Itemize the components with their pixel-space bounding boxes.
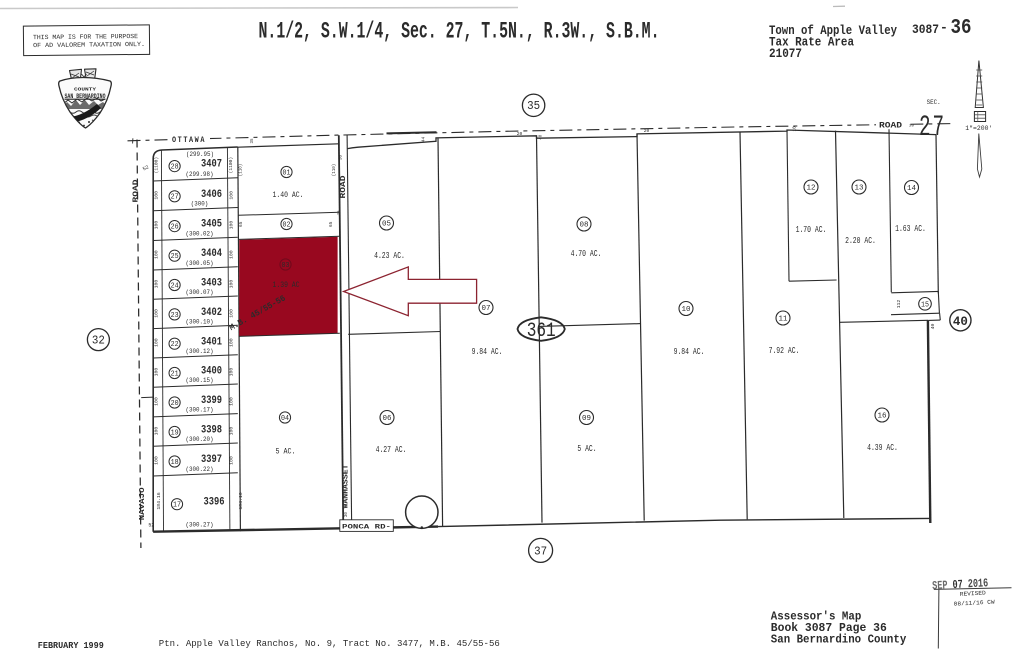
svg-text:(110): (110) bbox=[238, 164, 243, 177]
svg-text:PONCA RD-: PONCA RD- bbox=[342, 524, 391, 532]
svg-text:100: 100 bbox=[154, 338, 160, 347]
svg-text:(300.05): (300.05) bbox=[186, 260, 214, 267]
svg-text:5 AC.: 5 AC. bbox=[276, 448, 296, 457]
svg-text:7.92 AC.: 7.92 AC. bbox=[769, 346, 800, 356]
svg-text:-: - bbox=[940, 20, 948, 35]
svg-text:112: 112 bbox=[896, 300, 902, 309]
svg-text:100: 100 bbox=[228, 309, 234, 318]
svg-text:1"=200': 1"=200' bbox=[965, 125, 992, 132]
svg-text:184.10: 184.10 bbox=[238, 492, 244, 509]
svg-text:03: 03 bbox=[282, 262, 290, 270]
svg-text:(300.17): (300.17) bbox=[186, 407, 214, 414]
svg-text:4.23 AC.: 4.23 AC. bbox=[374, 251, 405, 261]
svg-text:NAVAJO: NAVAJO bbox=[139, 487, 147, 521]
svg-text:40: 40 bbox=[540, 134, 544, 140]
svg-text:06: 06 bbox=[383, 415, 392, 423]
svg-text:FEBRUARY 1999: FEBRUARY 1999 bbox=[38, 641, 104, 651]
svg-text:1.70 AC.: 1.70 AC. bbox=[796, 225, 827, 235]
svg-text:1.39 AC: 1.39 AC bbox=[273, 282, 300, 290]
svg-text:100: 100 bbox=[154, 456, 160, 465]
svg-text:(110): (110) bbox=[332, 164, 337, 177]
svg-text:14: 14 bbox=[907, 185, 916, 193]
svg-text:3400: 3400 bbox=[201, 366, 222, 378]
svg-text:21: 21 bbox=[171, 370, 179, 378]
svg-text:(300.10): (300.10) bbox=[186, 318, 214, 325]
svg-text:100: 100 bbox=[228, 191, 234, 200]
svg-text:10: 10 bbox=[682, 306, 691, 314]
svg-text:COUNTY: COUNTY bbox=[74, 87, 96, 93]
svg-text:3398: 3398 bbox=[201, 425, 222, 437]
svg-text:30: 30 bbox=[345, 512, 349, 518]
svg-text:37: 37 bbox=[534, 546, 547, 559]
svg-text:1.63 AC.: 1.63 AC. bbox=[895, 224, 926, 234]
svg-text:9.84 AC.: 9.84 AC. bbox=[674, 347, 705, 357]
svg-text:3407: 3407 bbox=[201, 159, 222, 171]
svg-text:16: 16 bbox=[878, 413, 887, 421]
svg-text:(300.15): (300.15) bbox=[186, 377, 214, 384]
svg-text:(300.12): (300.12) bbox=[186, 348, 214, 355]
svg-text:15: 15 bbox=[921, 301, 929, 309]
svg-text:02: 02 bbox=[283, 221, 291, 229]
svg-text:361: 361 bbox=[527, 320, 556, 343]
svg-text:3406: 3406 bbox=[201, 189, 222, 201]
svg-text:(300.20): (300.20) bbox=[186, 436, 214, 443]
svg-text:(1100): (1100) bbox=[154, 157, 160, 174]
svg-text:SEC.: SEC. bbox=[927, 99, 941, 106]
svg-text:36: 36 bbox=[951, 17, 972, 40]
svg-text:20: 20 bbox=[644, 128, 650, 134]
svg-text:04: 04 bbox=[281, 415, 289, 423]
svg-text:ROAD: ROAD bbox=[879, 121, 902, 130]
svg-text:100: 100 bbox=[154, 280, 160, 289]
svg-text:3401: 3401 bbox=[201, 336, 222, 348]
svg-text:35: 35 bbox=[527, 100, 540, 113]
svg-text:12: 12 bbox=[807, 185, 816, 193]
svg-text:1.40 AC.: 1.40 AC. bbox=[273, 191, 304, 200]
svg-text:100: 100 bbox=[154, 221, 160, 230]
svg-text:5 AC.: 5 AC. bbox=[577, 444, 596, 454]
svg-text:21077: 21077 bbox=[769, 47, 802, 61]
svg-text:44: 44 bbox=[422, 137, 427, 143]
svg-text:08: 08 bbox=[580, 222, 589, 230]
svg-text:ROAD: ROAD bbox=[340, 175, 348, 199]
svg-text:N.1/2, S.W.1/4, Sec. 27, T.5N.: N.1/2, S.W.1/4, Sec. 27, T.5N., R.3W., S… bbox=[259, 19, 660, 45]
svg-text:(1100): (1100) bbox=[228, 157, 234, 174]
svg-text:100: 100 bbox=[154, 309, 160, 318]
svg-text:65: 65 bbox=[239, 221, 244, 227]
svg-text:184.16: 184.16 bbox=[156, 492, 162, 509]
svg-text:3399: 3399 bbox=[201, 395, 222, 407]
svg-text:(300.07): (300.07) bbox=[186, 289, 214, 296]
svg-text:17: 17 bbox=[173, 502, 181, 510]
svg-text:27: 27 bbox=[171, 194, 179, 202]
svg-text:100: 100 bbox=[228, 338, 234, 347]
svg-text:23: 23 bbox=[171, 312, 179, 320]
svg-text:45: 45 bbox=[337, 210, 342, 216]
svg-text:100: 100 bbox=[228, 427, 234, 436]
svg-text:25: 25 bbox=[171, 253, 179, 261]
svg-text:100: 100 bbox=[228, 250, 234, 259]
svg-text:10: 10 bbox=[793, 126, 798, 132]
svg-text:100: 100 bbox=[228, 280, 234, 289]
svg-text:4.70 AC.: 4.70 AC. bbox=[571, 249, 602, 259]
svg-text:3087: 3087 bbox=[912, 23, 939, 37]
svg-text:(299.95): (299.95) bbox=[186, 151, 214, 158]
svg-text:3403: 3403 bbox=[201, 278, 222, 290]
svg-text:13: 13 bbox=[855, 185, 864, 193]
svg-text:11: 11 bbox=[779, 316, 788, 324]
svg-text:San Bernardino County: San Bernardino County bbox=[771, 633, 907, 646]
svg-text:09: 09 bbox=[582, 415, 591, 423]
svg-text:100: 100 bbox=[154, 368, 160, 377]
svg-text:100: 100 bbox=[154, 397, 160, 406]
svg-text:01: 01 bbox=[283, 169, 291, 177]
svg-text:20: 20 bbox=[909, 124, 914, 128]
svg-text:(300.22): (300.22) bbox=[186, 466, 214, 473]
svg-text:35: 35 bbox=[251, 138, 255, 144]
svg-text:20: 20 bbox=[171, 400, 179, 408]
svg-text:OTTAWA: OTTAWA bbox=[172, 135, 206, 145]
svg-text:100: 100 bbox=[228, 368, 234, 377]
svg-text:3397: 3397 bbox=[201, 454, 222, 466]
svg-text:100: 100 bbox=[228, 221, 234, 230]
svg-text:REVISED: REVISED bbox=[960, 589, 987, 597]
svg-text:20: 20 bbox=[517, 131, 523, 137]
svg-text:Ptn. Apple Valley Ranchos, No.: Ptn. Apple Valley Ranchos, No. 9, Tract … bbox=[159, 638, 500, 649]
svg-text:65: 65 bbox=[329, 221, 334, 227]
svg-text:100: 100 bbox=[154, 191, 160, 200]
svg-text:07: 07 bbox=[482, 305, 491, 313]
svg-text:3396: 3396 bbox=[204, 496, 225, 508]
svg-text:27: 27 bbox=[919, 111, 946, 145]
svg-text:(300.27): (300.27) bbox=[186, 522, 214, 529]
svg-text:18: 18 bbox=[171, 459, 179, 467]
svg-text:24: 24 bbox=[171, 282, 179, 290]
svg-text:100: 100 bbox=[228, 397, 234, 406]
svg-text:4.27 AC.: 4.27 AC. bbox=[376, 445, 407, 455]
svg-text:32: 32 bbox=[92, 334, 105, 347]
svg-text:19: 19 bbox=[171, 429, 179, 437]
svg-text:(300): (300) bbox=[191, 201, 209, 208]
svg-text:26: 26 bbox=[171, 224, 179, 232]
svg-text:ROAD: ROAD bbox=[133, 179, 141, 203]
svg-text:(300.02): (300.02) bbox=[186, 230, 214, 237]
svg-text:4.39 AC.: 4.39 AC. bbox=[867, 443, 898, 453]
svg-text:3404: 3404 bbox=[201, 248, 222, 260]
svg-text:OF AD VALOREM TAXATION ONLY.: OF AD VALOREM TAXATION ONLY. bbox=[33, 41, 145, 49]
svg-text:(299.98): (299.98) bbox=[186, 171, 214, 178]
svg-text:2.20 AC.: 2.20 AC. bbox=[845, 236, 876, 246]
svg-text:50: 50 bbox=[339, 155, 344, 161]
svg-text:WANHASSET: WANHASSET bbox=[342, 464, 350, 509]
svg-text:3405: 3405 bbox=[201, 219, 222, 231]
svg-text:05: 05 bbox=[382, 221, 391, 229]
svg-text:40: 40 bbox=[953, 314, 968, 329]
svg-text:40: 40 bbox=[930, 324, 936, 330]
svg-text:3402: 3402 bbox=[201, 307, 222, 319]
svg-text:100: 100 bbox=[228, 456, 234, 465]
svg-text:28: 28 bbox=[171, 164, 179, 172]
svg-text:22: 22 bbox=[171, 341, 179, 349]
svg-text:THIS MAP IS FOR THE PURPOSE: THIS MAP IS FOR THE PURPOSE bbox=[33, 33, 138, 41]
svg-text:9.84 AC.: 9.84 AC. bbox=[472, 347, 503, 357]
svg-text:100: 100 bbox=[154, 427, 160, 436]
svg-text:100: 100 bbox=[154, 250, 160, 259]
